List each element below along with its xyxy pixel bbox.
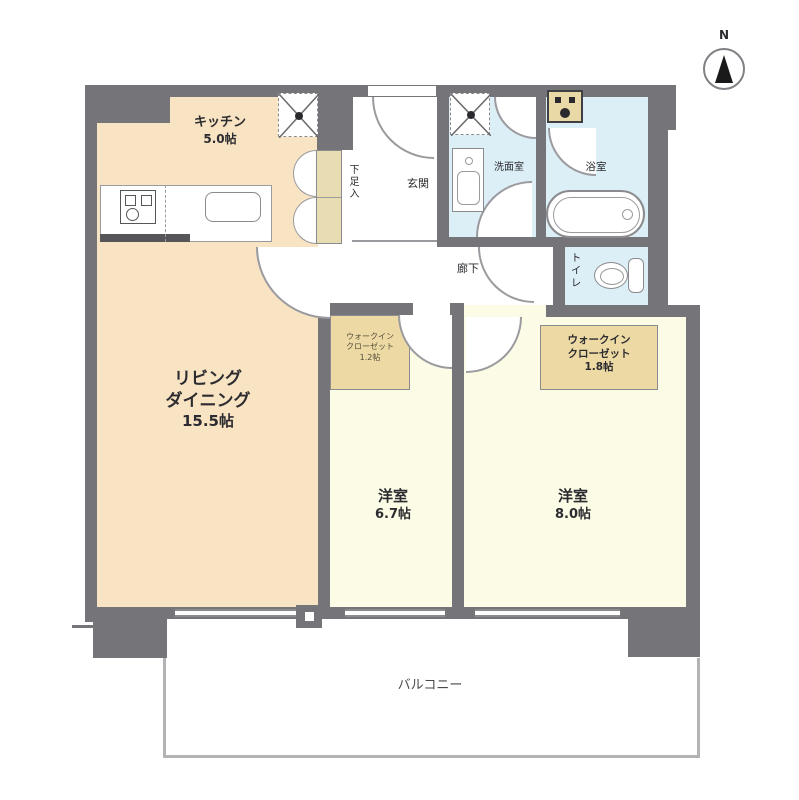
door-opening <box>413 303 450 315</box>
front-door-swing <box>372 97 434 159</box>
pillar <box>93 615 167 658</box>
bathtub-icon <box>546 190 645 238</box>
wall-segment <box>553 247 565 305</box>
compass-label: N <box>711 28 737 44</box>
hallway-label: 廊下 <box>443 262 493 276</box>
kitchen-label: キッチン 5.0帖 <box>160 115 280 147</box>
balcony-label: バルコニー <box>350 678 510 695</box>
toilet-label: トイレ <box>568 252 582 290</box>
pipe-space-icon <box>450 93 490 135</box>
wall-segment <box>686 305 700 620</box>
entrance-step-line <box>352 240 437 242</box>
room-living-dining <box>97 97 318 607</box>
entrance-label: 玄関 <box>393 177 443 191</box>
living-dining-label: リビング ダイニング 15.5帖 <box>138 368 278 432</box>
wall-segment <box>318 317 330 607</box>
wall-segment <box>648 85 668 317</box>
front-door-opening <box>368 86 436 96</box>
wic-12-label: ウォークイン クローゼット 1.2帖 <box>331 332 409 363</box>
wic-18-label: ウォークイン クローゼット 1.8帖 <box>542 334 656 375</box>
wall-segment <box>72 625 93 628</box>
balcony-rail <box>163 755 700 758</box>
stove-icon <box>120 190 156 224</box>
vent-icon <box>296 605 322 628</box>
shoe-cabinet <box>316 150 342 244</box>
bedroom-80-label: 洋室 8.0帖 <box>528 487 618 523</box>
balcony-rail <box>163 658 166 757</box>
washbasin-icon <box>452 148 484 212</box>
wall-segment <box>85 85 97 622</box>
pipe-space-icon <box>278 93 318 137</box>
bathroom-label: 浴室 <box>574 161 618 175</box>
shoe-storage-label: 下足入 <box>346 164 359 200</box>
toilet-tank <box>628 258 644 293</box>
wall-segment <box>546 305 700 317</box>
counter-edge <box>100 234 190 242</box>
sink-icon <box>205 192 261 222</box>
toilet-icon <box>594 262 628 289</box>
wall-segment <box>437 237 668 247</box>
window <box>345 609 445 617</box>
bedroom-67-label: 洋室 6.7帖 <box>348 487 438 523</box>
wall-segment <box>437 97 449 237</box>
window <box>175 609 310 617</box>
floor-plan: N キッチン 5.0帖 リビング ダイニング 15.5帖 洋室 6.7帖 洋室 … <box>0 0 799 800</box>
window <box>475 609 620 617</box>
wall-segment <box>536 97 546 237</box>
wall-segment <box>85 85 170 123</box>
water-heater-icon <box>547 90 583 123</box>
wall-segment <box>317 85 353 150</box>
north-arrow-icon <box>703 48 745 90</box>
pillar <box>628 613 700 657</box>
washroom-label: 洗面室 <box>482 161 536 174</box>
balcony-rail <box>697 658 700 757</box>
wall-segment <box>452 303 464 607</box>
counter-divider <box>165 185 167 242</box>
